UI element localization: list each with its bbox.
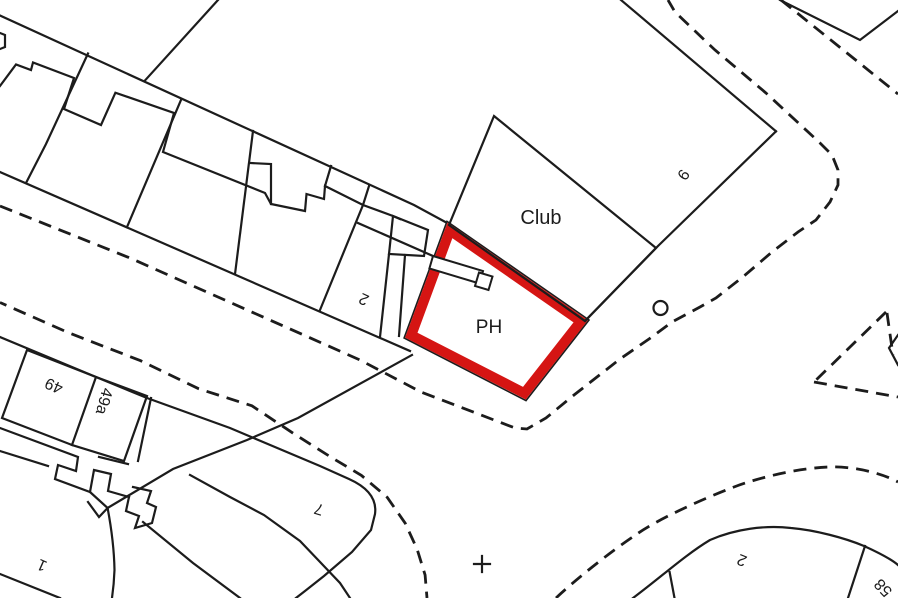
svg-text:6: 6 [675,167,694,184]
svg-text:58: 58 [871,575,896,598]
svg-text:7: 7 [312,499,326,518]
svg-text:PH: PH [476,317,502,338]
svg-text:49: 49 [42,374,65,397]
svg-text:1: 1 [35,555,50,574]
svg-text:2: 2 [356,289,371,308]
svg-text:2: 2 [735,550,750,569]
svg-text:49a: 49a [92,386,115,416]
svg-text:Club: Club [520,207,561,229]
